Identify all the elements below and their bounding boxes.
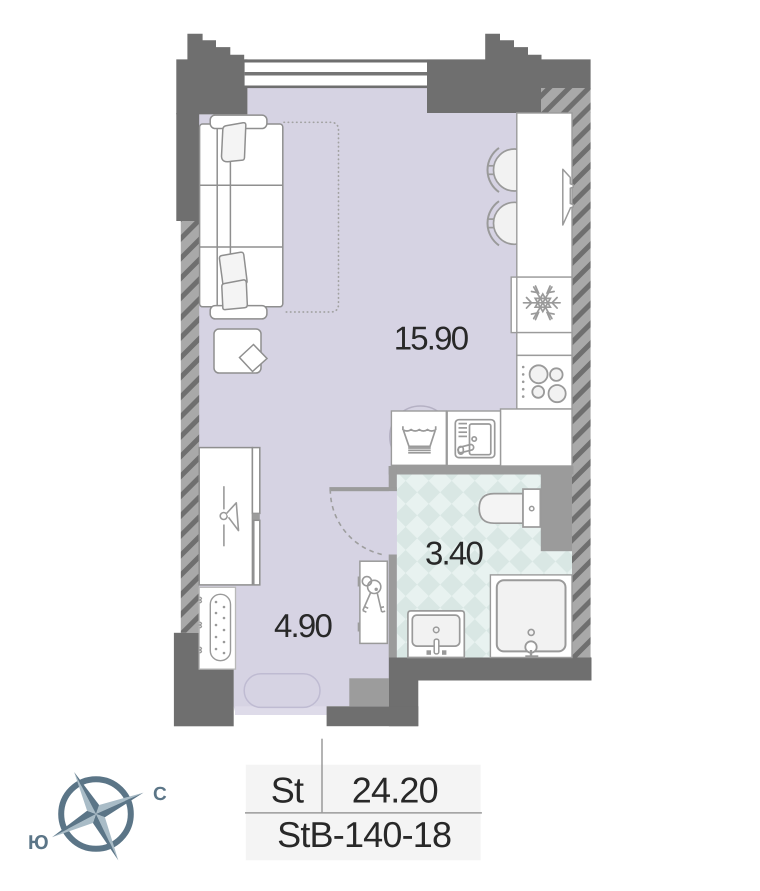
svg-text:St: St (271, 769, 304, 810)
svg-text:3.40: 3.40 (425, 535, 483, 572)
svg-text:24.20: 24.20 (352, 769, 438, 810)
svg-text:С: С (153, 784, 167, 805)
svg-text:Ю: Ю (28, 832, 49, 854)
svg-text:4.90: 4.90 (274, 607, 332, 644)
svg-text:StB-140-18: StB-140-18 (277, 814, 451, 855)
svg-text:15.90: 15.90 (394, 320, 469, 357)
